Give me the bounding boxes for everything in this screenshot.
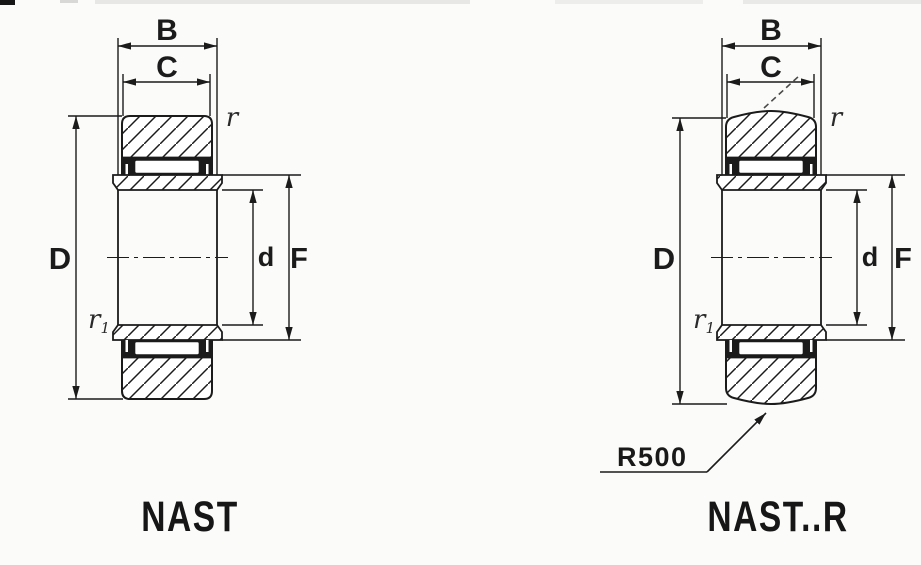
outer-ring-top — [122, 116, 212, 158]
inner-ring-flange-bottom — [113, 325, 222, 340]
label-B: B — [156, 14, 178, 47]
label-C: C — [760, 51, 782, 84]
figure-caption-nast: NAST — [141, 493, 239, 541]
figure-caption-nast-r: NAST..R — [707, 493, 848, 541]
label-F: F — [290, 243, 308, 275]
label-r-chamfer: r — [830, 103, 844, 133]
outer-ring-top-crowned — [726, 111, 816, 158]
outer-ring-bottom — [122, 357, 212, 399]
roller-row-top — [121, 158, 213, 176]
needle-roller — [134, 160, 200, 175]
label-d: d — [258, 242, 275, 272]
page-background — [0, 0, 921, 565]
inner-ring-flange-bottom — [717, 325, 826, 340]
label-D: D — [49, 241, 71, 276]
label-C: C — [156, 51, 178, 84]
diagram-page: B C — [0, 0, 921, 565]
roller-row-top — [725, 158, 817, 176]
inner-ring-flange-top — [717, 175, 826, 190]
needle-roller — [134, 341, 200, 356]
roller-row-bottom — [725, 340, 817, 357]
outer-ring-bottom-crowned — [726, 357, 816, 404]
label-D: D — [653, 241, 675, 276]
label-d: d — [862, 242, 879, 272]
inner-ring-flange-top — [113, 175, 222, 190]
roller-row-bottom — [121, 340, 213, 357]
needle-roller — [738, 341, 804, 356]
needle-roller — [738, 160, 804, 175]
bearing-diagram-svg: B C — [0, 0, 921, 565]
label-r500: R500 — [617, 442, 688, 472]
label-B: B — [760, 14, 782, 47]
label-F: F — [894, 243, 912, 275]
label-r-chamfer: r — [226, 103, 240, 133]
